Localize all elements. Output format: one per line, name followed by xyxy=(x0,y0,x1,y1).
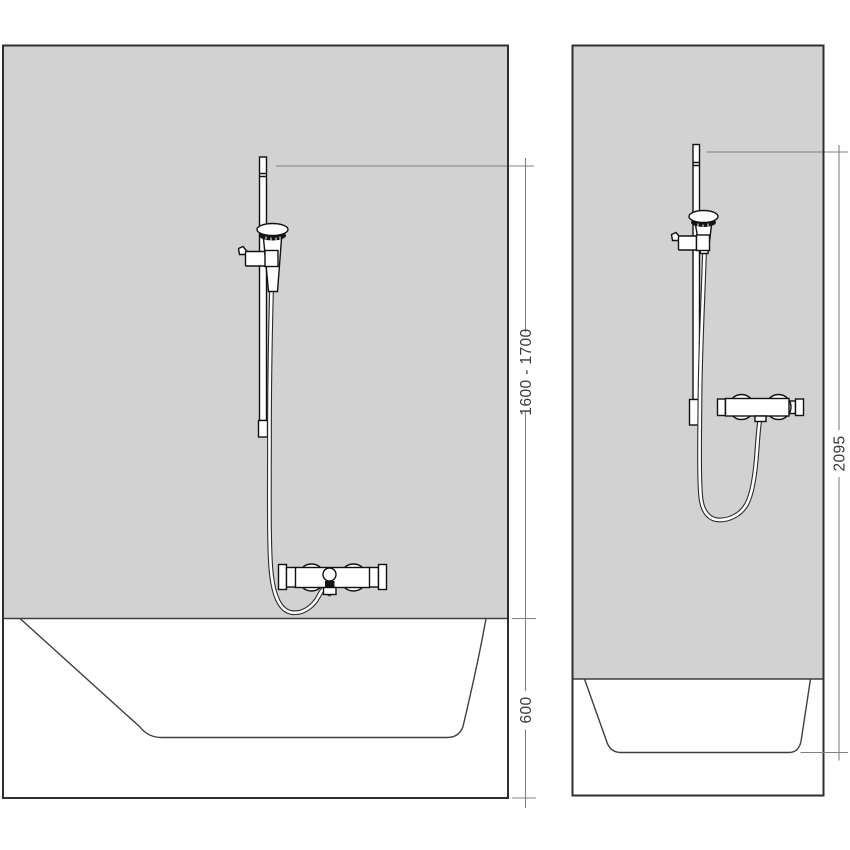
holder-clamp xyxy=(265,251,278,267)
diverter-base xyxy=(325,581,335,588)
holder-clamp xyxy=(697,235,710,251)
shower-holder xyxy=(246,252,266,267)
dimension-drawing-canvas: 1600 - 1700 600 xyxy=(0,0,850,850)
dimension-label-tub-height: 600 xyxy=(518,696,535,723)
dimension-label-total-height: 2095 xyxy=(832,435,849,471)
hand-shower-head xyxy=(689,211,718,223)
bathtub-dimensions: 1600 - 1700 600 xyxy=(512,158,536,808)
thermostat-flange-right xyxy=(379,565,387,590)
shower-holder xyxy=(679,236,697,250)
diverter-knob xyxy=(323,568,336,581)
bathtub-wall xyxy=(4,47,507,619)
bathtub-panel xyxy=(3,46,534,799)
slide-bar-end-cap xyxy=(259,421,268,438)
shower-tray-outline xyxy=(585,679,811,753)
dimension-label-bar-height: 1600 - 1700 xyxy=(518,328,535,415)
thermostat-flange-left xyxy=(718,399,726,416)
hose-outlet xyxy=(755,416,766,422)
hose-outlet xyxy=(324,588,337,595)
slide-bar-rail xyxy=(260,157,267,421)
slide-bar-left xyxy=(259,157,268,437)
bathtub-outline xyxy=(20,619,486,738)
thermostat-flange-right xyxy=(796,399,804,416)
thermostat-body xyxy=(726,399,790,417)
shower-panel xyxy=(573,46,849,796)
installation-diagram: 1600 - 1700 600 xyxy=(0,0,850,850)
hand-shower-head xyxy=(257,224,288,236)
thermostat-flange-left xyxy=(279,565,287,590)
